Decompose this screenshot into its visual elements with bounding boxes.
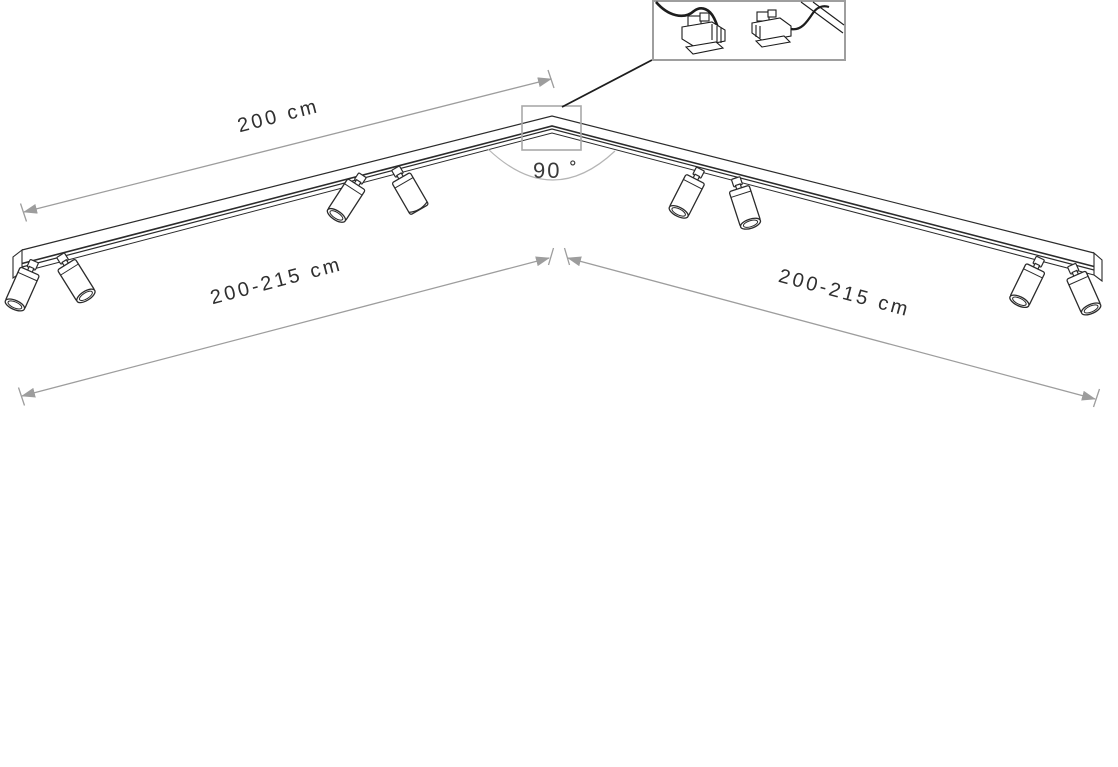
diagram-canvas: 200 cm 200-215 cm 200-215 cm 90 ˚: [0, 0, 1118, 767]
track-end-cap-right: [1094, 253, 1102, 281]
dim-tick: [565, 248, 570, 265]
spotlight-7: [1008, 253, 1050, 309]
spotlights: [3, 163, 1102, 318]
dimension-label-top: 200 cm: [235, 95, 321, 137]
track-face-line-1: [22, 126, 1094, 267]
dim-tick: [1094, 389, 1100, 407]
dim-tick: [549, 248, 554, 265]
track-assembly: [13, 116, 1102, 281]
dimension-label-span-left: 200-215 cm: [208, 253, 345, 309]
corner-angle: 90 ˚: [488, 149, 615, 183]
track-bottom-edge: [22, 133, 1094, 275]
inset-detail: [653, 1, 845, 60]
dimension-span-left: 200-215 cm: [19, 248, 554, 406]
dim-tick: [21, 204, 27, 222]
leader-line: [562, 60, 652, 107]
dim-tick: [19, 388, 25, 406]
dimension-label-span-right: 200-215 cm: [776, 265, 913, 321]
angle-label: 90 ˚: [533, 158, 579, 183]
dimension-span-right: 200-215 cm: [565, 248, 1100, 407]
diagram-page: 200 cm 200-215 cm 200-215 cm 90 ˚: [0, 0, 1118, 767]
spotlight-5: [667, 164, 710, 220]
track-body: [22, 116, 1094, 275]
